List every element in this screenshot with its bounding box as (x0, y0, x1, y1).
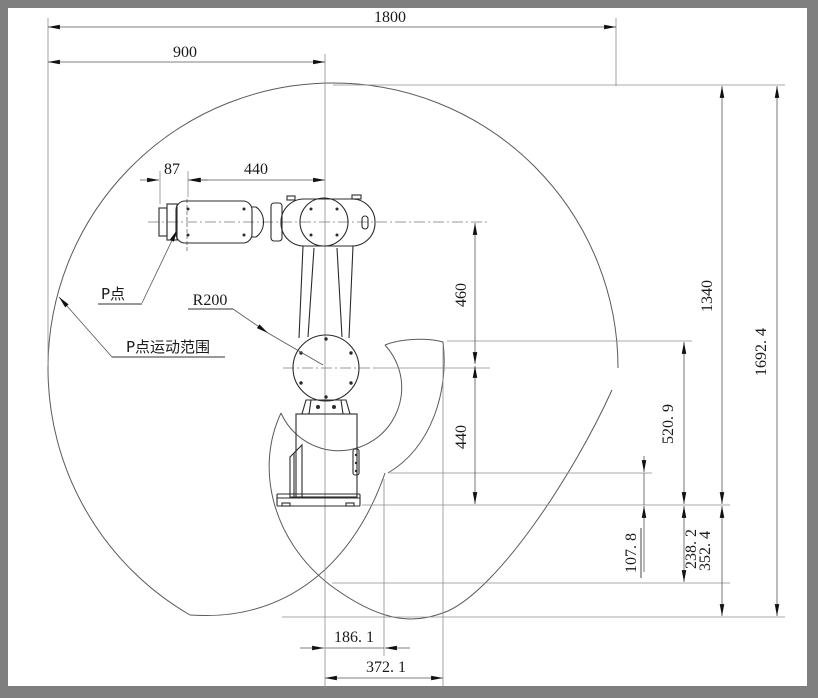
robot-working-range-drawing: 1800 900 87 440 460 440 1340 1692. 4 520… (0, 0, 818, 698)
dim-tool-flange: 87 (164, 161, 180, 178)
dim-cusp-far: 372. 1 (366, 659, 406, 676)
cad-drawing-canvas: 1800 900 87 440 460 440 1340 1692. 4 520… (0, 0, 818, 698)
dim-lower-small: 107. 8 (623, 533, 640, 573)
dim-left-half: 900 (173, 44, 197, 61)
dim-cusp-near: 186. 1 (334, 629, 374, 646)
p-range-label: P点运动范围 (126, 338, 210, 356)
p-point-label: P点 (101, 285, 125, 303)
dim-wrist-to-center: 440 (244, 161, 268, 178)
dim-notch-height: 520. 9 (660, 404, 677, 444)
dim-lower-total: 352. 4 (697, 531, 714, 571)
dim-base-to-elbow: 440 (453, 425, 470, 449)
dim-elbow-to-wrist: 460 (453, 283, 470, 307)
r200-label: R200 (193, 292, 228, 309)
dim-overall-height: 1692. 4 (753, 328, 770, 376)
dim-total-width: 1800 (374, 9, 406, 26)
dim-top-to-base: 1340 (699, 280, 716, 312)
